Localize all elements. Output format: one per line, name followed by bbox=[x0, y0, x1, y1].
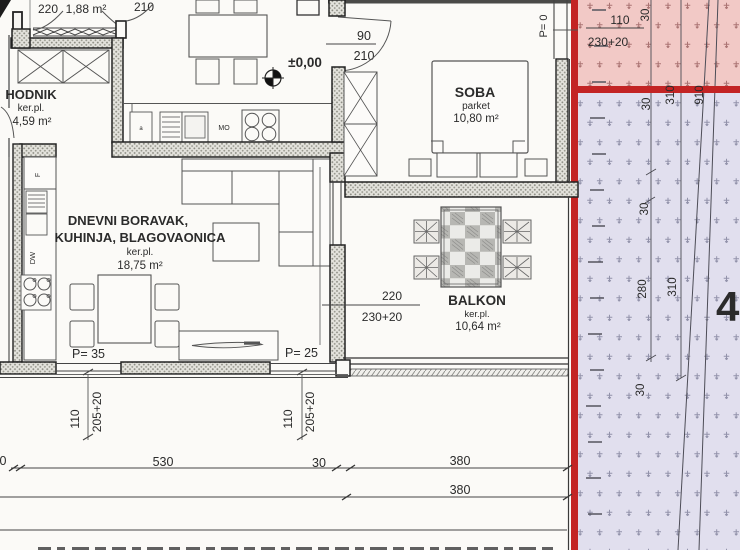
svg-text:ker.pl.: ker.pl. bbox=[18, 103, 45, 114]
svg-text:MO: MO bbox=[218, 125, 230, 132]
svg-text:DW: DW bbox=[28, 251, 37, 264]
svg-text:110: 110 bbox=[281, 409, 295, 428]
svg-text:ker.pl.: ker.pl. bbox=[464, 309, 489, 320]
svg-text:310: 310 bbox=[665, 85, 677, 104]
svg-text:0: 0 bbox=[0, 454, 7, 468]
svg-text:230+20: 230+20 bbox=[362, 310, 403, 324]
svg-text:parket: parket bbox=[462, 101, 490, 112]
svg-text:ker.pl.: ker.pl. bbox=[127, 247, 154, 258]
svg-text:310: 310 bbox=[667, 277, 679, 296]
svg-text:220: 220 bbox=[38, 2, 58, 16]
svg-text:110: 110 bbox=[68, 409, 82, 428]
svg-text:BALKON: BALKON bbox=[448, 293, 506, 308]
svg-text:380: 380 bbox=[450, 454, 471, 468]
svg-text:280: 280 bbox=[637, 279, 649, 298]
svg-text:P= 35: P= 35 bbox=[72, 347, 105, 361]
svg-text:210: 210 bbox=[134, 0, 154, 14]
svg-text:380: 380 bbox=[450, 483, 471, 497]
svg-text:10,64 m²: 10,64 m² bbox=[455, 321, 501, 333]
svg-text:4: 4 bbox=[716, 283, 740, 330]
svg-text:230+20: 230+20 bbox=[588, 35, 629, 49]
svg-text:DNEVNI BORAVAK,: DNEVNI BORAVAK, bbox=[68, 213, 188, 228]
svg-text:±0,00: ±0,00 bbox=[288, 55, 322, 70]
svg-text:30: 30 bbox=[635, 384, 647, 397]
svg-text:P= 25: P= 25 bbox=[285, 346, 318, 360]
svg-text:910: 910 bbox=[694, 85, 706, 104]
svg-text:SOBA: SOBA bbox=[455, 84, 495, 100]
svg-text:F: F bbox=[35, 173, 42, 177]
svg-text:205+20: 205+20 bbox=[303, 391, 317, 432]
svg-text:18,75 m²: 18,75 m² bbox=[117, 260, 163, 272]
svg-text:90: 90 bbox=[357, 29, 371, 43]
svg-text:110: 110 bbox=[610, 13, 629, 27]
svg-text:10,80 m²: 10,80 m² bbox=[453, 113, 499, 125]
svg-text:HODNIK: HODNIK bbox=[5, 87, 57, 102]
svg-text:30: 30 bbox=[640, 9, 652, 22]
svg-text:KUHINJA, BLAGOVAONICA: KUHINJA, BLAGOVAONICA bbox=[55, 230, 227, 245]
svg-text:205+20: 205+20 bbox=[90, 391, 104, 432]
svg-text:4,59 m²: 4,59 m² bbox=[13, 116, 52, 128]
svg-text:1,88 m²: 1,88 m² bbox=[66, 2, 107, 16]
svg-text:30: 30 bbox=[639, 203, 651, 216]
svg-text:530: 530 bbox=[153, 455, 174, 469]
svg-text:210: 210 bbox=[354, 49, 375, 63]
svg-text:P= 0: P= 0 bbox=[538, 15, 550, 38]
svg-text:30: 30 bbox=[641, 98, 653, 111]
svg-text:30: 30 bbox=[312, 456, 326, 470]
svg-text:220: 220 bbox=[382, 289, 402, 303]
